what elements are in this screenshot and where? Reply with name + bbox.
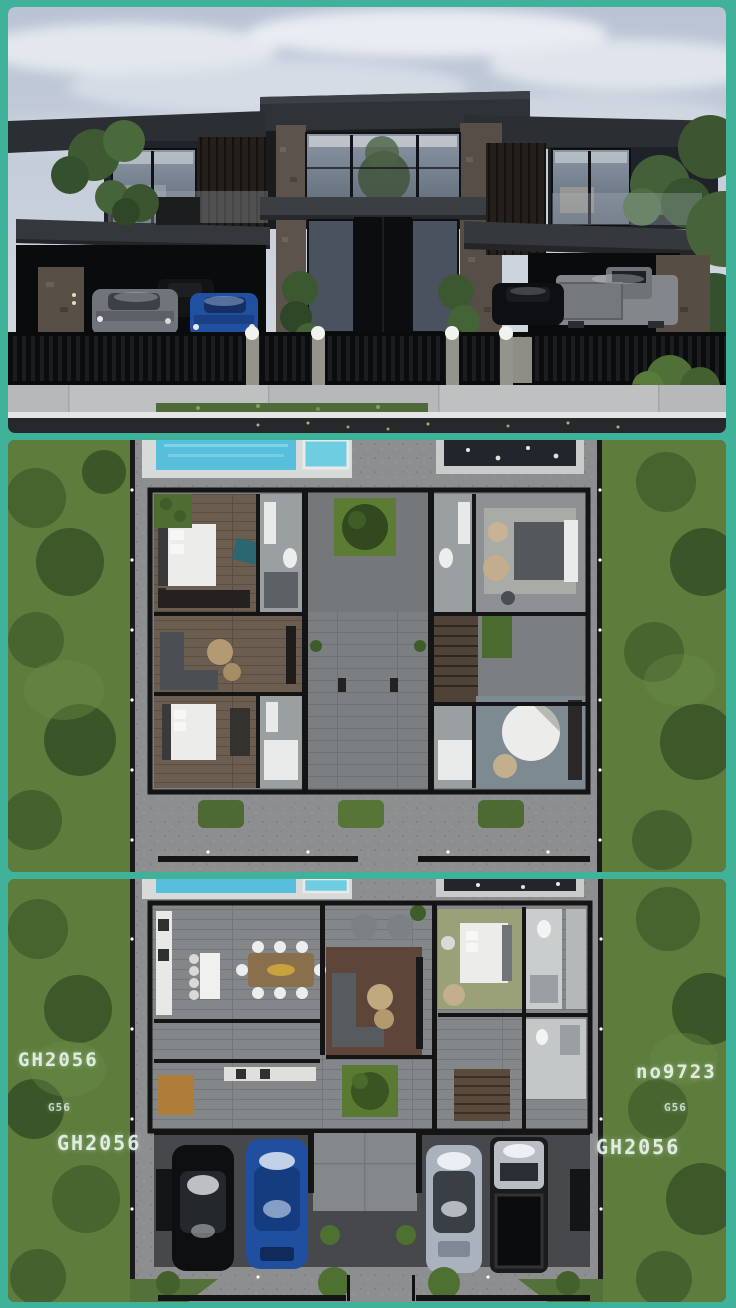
house-upper-floor xyxy=(150,490,588,792)
pool-area xyxy=(142,440,352,478)
car-pickup-topdown xyxy=(490,1137,548,1273)
stairs xyxy=(454,1069,510,1121)
spa-tub xyxy=(304,879,348,892)
ground-floor-plan xyxy=(8,879,726,1302)
lot-wall-right xyxy=(598,879,603,1302)
curb xyxy=(8,412,726,418)
corridor xyxy=(306,612,430,792)
car-grey-sedan xyxy=(92,289,178,335)
watermark-label: GH2056 xyxy=(57,1133,141,1153)
tan-cabinet xyxy=(158,1075,194,1115)
water-feature xyxy=(436,440,584,474)
lot-wall-right xyxy=(597,440,602,872)
car-black-topdown xyxy=(172,1145,234,1271)
swimming-pool xyxy=(156,879,296,893)
upper-floor-plan xyxy=(8,440,726,872)
car-blue-topdown xyxy=(246,1139,308,1269)
pool-area xyxy=(142,879,352,899)
car-black-right xyxy=(492,283,564,325)
right-bed xyxy=(514,522,564,580)
walkway-shrub xyxy=(396,1225,416,1245)
right-stairs xyxy=(434,616,478,702)
front-fence xyxy=(8,332,726,385)
ground-floor-plan-panel: GH2056 G56 GH2056 no9723 G56 GH2056 xyxy=(8,879,726,1302)
watermark-label: GH2056 xyxy=(596,1137,680,1157)
ground-bedroom xyxy=(438,909,522,1009)
watermark-label: G56 xyxy=(664,1102,687,1113)
kitchen-island xyxy=(200,953,220,999)
left-wardrobe xyxy=(158,590,250,608)
gate-bush xyxy=(318,1267,350,1299)
left-bed-2 xyxy=(162,704,250,760)
gate-bush xyxy=(428,1267,460,1299)
walkway-shrub xyxy=(320,1225,340,1245)
watermark-label: G56 xyxy=(48,1102,71,1113)
entry-ground xyxy=(308,217,458,335)
water-feature xyxy=(436,879,584,897)
spa-tub xyxy=(304,440,348,468)
upper-floor-plan-panel xyxy=(8,440,726,872)
left-planter-box xyxy=(154,494,192,528)
ground-bathroom xyxy=(526,909,586,1009)
watermark-label: no9723 xyxy=(636,1063,717,1082)
garage-bench-right xyxy=(570,1169,590,1231)
composite-architecture-image: { "frame": { "border_color": "#41b29a" }… xyxy=(0,0,736,1308)
watermark-label: GH2056 xyxy=(18,1051,99,1070)
house-ground-floor xyxy=(150,903,590,1131)
right-balcony-railing xyxy=(552,193,702,225)
car-pickup-truck xyxy=(556,267,678,328)
stair-planter xyxy=(482,616,512,658)
lot-wall-left xyxy=(130,879,135,1302)
exterior-render xyxy=(8,7,726,433)
road xyxy=(8,418,726,433)
lot-wall-left xyxy=(130,440,135,872)
exterior-render-panel xyxy=(8,7,726,433)
car-silver-topdown xyxy=(426,1145,482,1273)
